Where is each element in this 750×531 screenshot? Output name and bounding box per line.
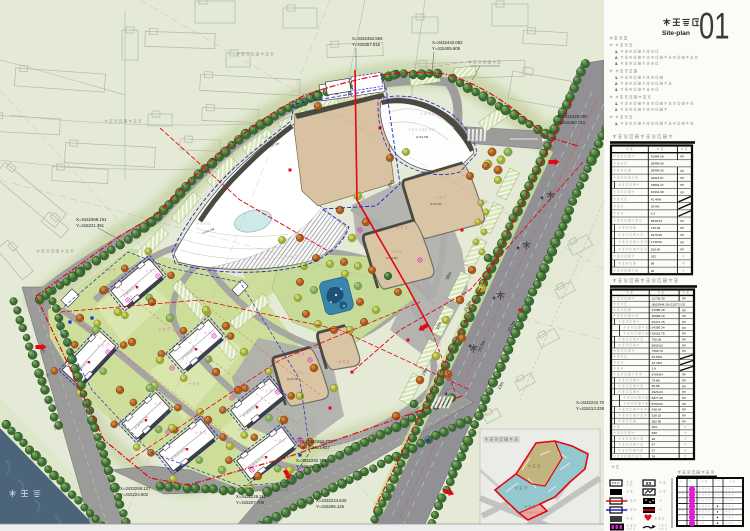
svg-text:98: 98 bbox=[651, 262, 655, 266]
svg-text:758.36: 758.36 bbox=[652, 337, 662, 341]
svg-text:38494.59: 38494.59 bbox=[651, 162, 664, 166]
svg-text:Y=415361.617: Y=415361.617 bbox=[302, 445, 331, 450]
svg-text:X=3432224.846: X=3432224.846 bbox=[316, 498, 347, 503]
svg-text:2.: 2. bbox=[615, 82, 618, 86]
svg-text:X=3432368.191: X=3432368.191 bbox=[76, 217, 107, 222]
svg-text:10931.98: 10931.98 bbox=[651, 190, 664, 194]
svg-text:32.36%: 32.36% bbox=[652, 361, 663, 365]
svg-text:m²: m² bbox=[682, 414, 686, 418]
svg-text:60989.29: 60989.29 bbox=[652, 314, 665, 318]
svg-text:39.9%: 39.9% bbox=[651, 204, 660, 208]
svg-text:1.: 1. bbox=[615, 50, 618, 54]
svg-text:m²: m² bbox=[682, 343, 686, 347]
svg-text:Y=415356.100: Y=415356.100 bbox=[296, 464, 325, 469]
svg-text:528.32: 528.32 bbox=[652, 413, 662, 417]
svg-text:Y=415207.709: Y=415207.709 bbox=[236, 500, 265, 505]
svg-text:332: 332 bbox=[651, 255, 656, 259]
svg-text:H=11.5M: H=11.5M bbox=[287, 377, 299, 381]
svg-text:3.: 3. bbox=[615, 88, 618, 92]
svg-text:m²: m² bbox=[682, 402, 686, 406]
svg-text:m²: m² bbox=[682, 338, 686, 342]
svg-text:X=3433268.137: X=3433268.137 bbox=[120, 486, 151, 491]
svg-text:382.90: 382.90 bbox=[652, 419, 662, 423]
svg-text:m²: m² bbox=[682, 419, 686, 423]
svg-text:8559.62: 8559.62 bbox=[652, 343, 663, 347]
svg-text:4926.23: 4926.23 bbox=[652, 390, 663, 394]
svg-text:m²: m² bbox=[682, 408, 686, 412]
svg-text:m²: m² bbox=[682, 373, 686, 377]
svg-text:m²: m² bbox=[680, 183, 684, 187]
svg-text:X=3432442.082: X=3432442.082 bbox=[432, 40, 463, 45]
svg-text:XX: XX bbox=[646, 481, 652, 486]
svg-text:Y=415405.608: Y=415405.608 bbox=[432, 46, 461, 51]
svg-text:34356.34: 34356.34 bbox=[652, 326, 665, 330]
svg-text:X=3432262.772: X=3432262.772 bbox=[302, 439, 333, 444]
svg-text:1.: 1. bbox=[615, 76, 618, 80]
svg-text:19018.75: 19018.75 bbox=[652, 332, 665, 336]
svg-text:m²: m² bbox=[680, 176, 684, 180]
svg-text:Y=415460.743: Y=415460.743 bbox=[557, 120, 586, 125]
svg-text:79.88: 79.88 bbox=[652, 378, 660, 382]
svg-text:m²: m² bbox=[682, 390, 686, 394]
svg-text:6535.64: 6535.64 bbox=[651, 219, 662, 223]
svg-text:m²: m² bbox=[680, 247, 684, 251]
svg-text:m²: m² bbox=[682, 349, 686, 353]
svg-text:27: 27 bbox=[652, 449, 656, 453]
svg-text:8799.62: 8799.62 bbox=[652, 402, 663, 406]
svg-text:Y=415224.602: Y=415224.602 bbox=[120, 492, 149, 497]
svg-text:m²: m² bbox=[680, 169, 684, 173]
svg-text:1739.62: 1739.62 bbox=[651, 240, 662, 244]
svg-text:m²: m² bbox=[680, 240, 684, 244]
svg-text:m²: m² bbox=[682, 332, 686, 336]
svg-text:m²: m² bbox=[682, 396, 686, 400]
svg-text:67985.49: 67985.49 bbox=[652, 308, 665, 312]
svg-text:m²: m² bbox=[682, 378, 686, 382]
svg-text:X=3432226.111: X=3432226.111 bbox=[236, 494, 266, 499]
svg-text:34.56%: 34.56% bbox=[652, 355, 663, 359]
svg-text:98: 98 bbox=[652, 437, 656, 441]
svg-text:X=3432426.090: X=3432426.090 bbox=[557, 114, 588, 119]
svg-text:53474.75: 53474.75 bbox=[652, 320, 665, 324]
svg-text:21736.30: 21736.30 bbox=[652, 296, 665, 300]
svg-text:66.88: 66.88 bbox=[652, 384, 660, 388]
svg-text:15964.28: 15964.28 bbox=[651, 154, 664, 158]
svg-text:Site-plan: Site-plan bbox=[662, 30, 690, 37]
svg-text:m²: m² bbox=[682, 384, 686, 388]
svg-text:3.: 3. bbox=[615, 62, 618, 66]
svg-text:536.40: 536.40 bbox=[651, 247, 661, 251]
svg-text:2.8: 2.8 bbox=[652, 367, 657, 371]
svg-text:m²: m² bbox=[680, 219, 684, 223]
svg-text:m²: m² bbox=[680, 155, 684, 159]
svg-text:m²: m² bbox=[682, 308, 686, 312]
svg-text:1277.46: 1277.46 bbox=[652, 396, 663, 400]
svg-text:X=3432462.556: X=3432462.556 bbox=[352, 36, 383, 41]
svg-text:(B)15964.28 (C)5772.02: (B)15964.28 (C)5772.02 bbox=[652, 302, 686, 306]
svg-text:41.46%: 41.46% bbox=[651, 197, 662, 201]
svg-text:730.48: 730.48 bbox=[651, 226, 661, 230]
svg-text:438.34: 438.34 bbox=[652, 408, 662, 412]
svg-text:m²: m² bbox=[680, 190, 684, 194]
svg-text:32914.97: 32914.97 bbox=[651, 176, 664, 180]
svg-text:2.: 2. bbox=[615, 108, 618, 112]
svg-text:Y=415213.339: Y=415213.339 bbox=[576, 406, 605, 411]
svg-text:46: 46 bbox=[651, 269, 655, 273]
svg-text:394: 394 bbox=[652, 425, 657, 429]
svg-text:33834.47: 33834.47 bbox=[651, 183, 664, 187]
svg-text:m²: m² bbox=[682, 326, 686, 330]
svg-text:598: 598 bbox=[652, 431, 657, 435]
svg-text:m²: m² bbox=[680, 233, 684, 237]
svg-text:7508.79: 7508.79 bbox=[652, 349, 663, 353]
svg-text:78: 78 bbox=[652, 454, 656, 458]
svg-text:4970.90: 4970.90 bbox=[651, 233, 662, 237]
svg-text:38494.59: 38494.59 bbox=[651, 169, 664, 173]
svg-text:01: 01 bbox=[699, 6, 729, 47]
svg-text:87: 87 bbox=[652, 443, 656, 447]
svg-text:Y=415266.125: Y=415266.125 bbox=[316, 504, 345, 509]
svg-text:1.: 1. bbox=[615, 122, 618, 126]
svg-text:2.: 2. bbox=[615, 56, 618, 60]
svg-text:1.: 1. bbox=[615, 102, 618, 106]
svg-text:m²: m² bbox=[682, 297, 686, 301]
svg-text:8789.84: 8789.84 bbox=[652, 373, 663, 377]
svg-text:Y=415221.351: Y=415221.351 bbox=[76, 223, 105, 228]
svg-text:2.3: 2.3 bbox=[651, 212, 656, 216]
svg-text:m²: m² bbox=[680, 226, 684, 230]
svg-text:X=3432242.709: X=3432242.709 bbox=[576, 400, 607, 405]
svg-text:X=3432282.731: X=3432282.731 bbox=[296, 458, 327, 463]
svg-text:H=61.5M: H=61.5M bbox=[416, 135, 429, 139]
svg-text:m²: m² bbox=[682, 320, 686, 324]
svg-text:Y=415357.915: Y=415357.915 bbox=[352, 42, 381, 47]
svg-text:m²: m² bbox=[682, 314, 686, 318]
svg-text:H=53.3M: H=53.3M bbox=[430, 202, 442, 206]
